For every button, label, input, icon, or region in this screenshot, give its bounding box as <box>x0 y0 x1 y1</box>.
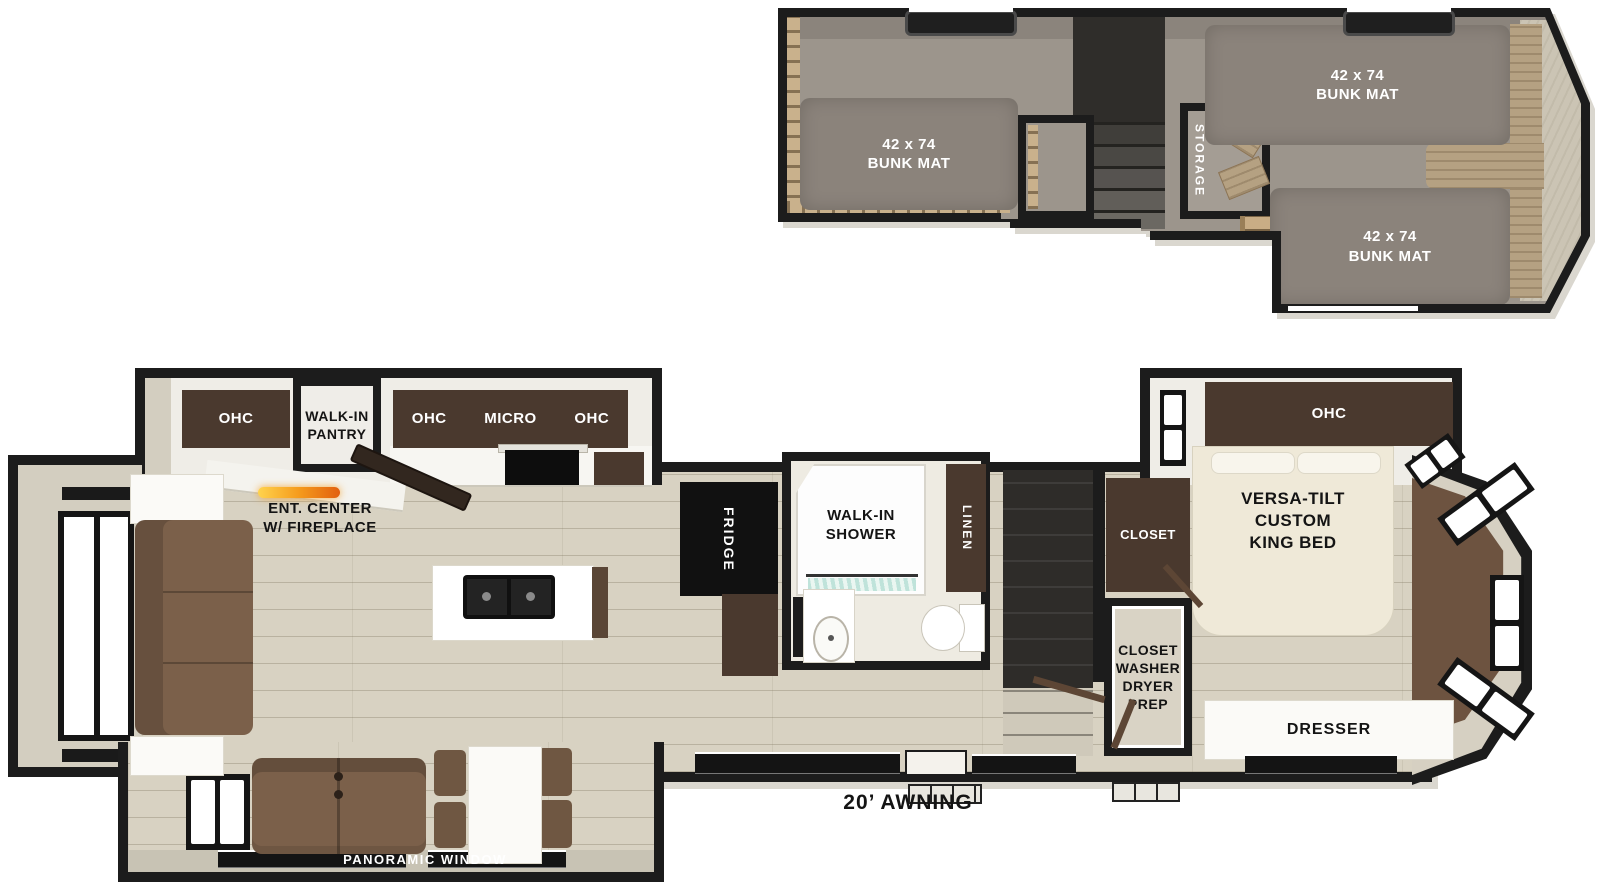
vanity <box>803 589 855 663</box>
bed-pillow <box>1211 452 1295 474</box>
shower-label-wrap: WALK-IN SHOWER <box>798 500 924 550</box>
ohc-right-label: OHC <box>574 409 609 429</box>
fridge-cabinet <box>722 594 778 676</box>
front-window <box>58 511 134 741</box>
ent-center-label: ENT. CENTER W/ FIREPLACE <box>263 499 377 538</box>
shower-label: WALK-IN SHOWER <box>826 506 897 545</box>
island-sink <box>463 575 555 619</box>
toilet <box>921 603 985 651</box>
shower-door-rail <box>806 574 918 577</box>
ent-center-label-wrap: ENT. CENTER W/ FIREPLACE <box>240 496 400 540</box>
washer-prep-label: CLOSET WASHER DRYER PREP <box>1116 641 1180 714</box>
slide-end-wall <box>145 378 171 485</box>
king-bed-label: VERSA-TILT CUSTOM KING BED <box>1241 488 1345 554</box>
rear-window-middle <box>1490 575 1524 671</box>
sofa-seam <box>163 662 253 664</box>
loft-rail-left <box>787 17 800 213</box>
loft-plan: STORAGE 42 x 74 BUNK MAT 42 x 74 BUNK MA… <box>778 8 1590 313</box>
dinette-chair <box>538 748 572 796</box>
kitchen-lower-cabinet <box>594 452 644 485</box>
end-table-bottom <box>130 736 224 776</box>
cupholder-icon <box>334 790 343 799</box>
micro-label: MICRO <box>484 409 537 429</box>
drain-icon <box>828 635 834 641</box>
linen-cabinet: LINEN <box>946 464 986 592</box>
bunk-mat-top-right: 42 x 74 BUNK MAT <box>1205 25 1510 145</box>
window-strip <box>695 752 900 774</box>
kitchen-cabinet-run: OHC MICRO OHC <box>393 390 628 448</box>
closet-label: CLOSET <box>1120 527 1176 544</box>
linen-label: LINEN <box>958 505 974 551</box>
dinette-chair <box>538 800 572 848</box>
skylight-icon <box>905 10 1017 36</box>
dinette-chair <box>434 802 466 848</box>
bunk-mat-left: 42 x 74 BUNK MAT <box>800 98 1018 210</box>
bathroom: WALK-IN SHOWER LINEN <box>782 452 990 670</box>
bed-pillow <box>1297 452 1381 474</box>
awning-label: 20’ AWNING <box>843 789 972 816</box>
panoramic-window-label: PANORAMIC WINDOW <box>343 852 507 869</box>
wood-divider-horizontal <box>1426 143 1544 189</box>
window-strip <box>1245 754 1397 774</box>
walk-in-shower: WALK-IN SHOWER <box>796 464 926 596</box>
dinette-chair <box>434 750 466 796</box>
fridge-label: FRIDGE <box>720 507 738 572</box>
bedroom-ohc-label: OHC <box>1312 404 1347 424</box>
awning-label-wrap: 20’ AWNING <box>808 788 1008 818</box>
landing-wood-edge <box>1028 125 1038 209</box>
toilet-bowl <box>921 605 965 651</box>
main-stairs <box>1003 470 1093 690</box>
faucet-icon <box>482 592 491 601</box>
bunk-mat-bottom-right-label: 42 x 74 BUNK MAT <box>1349 227 1432 266</box>
window-mullion <box>94 517 100 735</box>
ohc-mid-label: OHC <box>412 409 447 429</box>
island-end-panel <box>592 567 608 638</box>
ohc-cabinet-bedroom: OHC <box>1205 382 1453 446</box>
bunk-mat-bottom-right: 42 x 74 BUNK MAT <box>1270 188 1510 305</box>
ohc-left-label: OHC <box>219 409 254 429</box>
ohc-cabinet-left: OHC <box>182 390 290 448</box>
storage-shelf <box>1218 156 1270 200</box>
theater-seats <box>252 758 426 854</box>
panoramic-window-label-wrap: PANORAMIC WINDOW <box>310 852 540 868</box>
dresser-label: DRESSER <box>1287 720 1371 741</box>
kitchen-island <box>432 565 594 641</box>
loft-landing-room <box>1018 115 1094 219</box>
pantry-label: WALK-IN PANTRY <box>305 407 368 443</box>
bunk-mat-left-label: 42 x 74 BUNK MAT <box>868 135 951 174</box>
roof-trim <box>1347 8 1451 12</box>
faucet-icon <box>526 592 535 601</box>
cooktop <box>505 450 579 485</box>
bedroom-entry-steps <box>1112 782 1180 802</box>
sofa <box>135 520 253 735</box>
floorplan-canvas: STORAGE 42 x 74 BUNK MAT 42 x 74 BUNK MA… <box>0 0 1600 893</box>
slide-side-window <box>186 774 250 850</box>
sofa-seam <box>163 591 253 593</box>
bedroom-slide-window <box>1160 390 1186 466</box>
stairs-landing <box>1003 688 1093 756</box>
bunk-mat-top-right-label: 42 x 74 BUNK MAT <box>1316 66 1399 105</box>
dinette-table <box>468 746 542 864</box>
skylight-icon <box>1343 10 1455 36</box>
roof-trim <box>1288 306 1418 311</box>
loft-interior: STORAGE 42 x 74 BUNK MAT 42 x 74 BUNK MA… <box>778 8 1590 313</box>
dresser: DRESSER <box>1204 700 1454 760</box>
window-strip <box>972 754 1076 774</box>
fridge: FRIDGE <box>680 482 778 596</box>
end-table-top <box>130 474 224 524</box>
cupholder-icon <box>334 772 343 781</box>
vanity-mirror <box>793 597 803 657</box>
vanity-sink <box>813 616 849 662</box>
bed-label-wrap: VERSA-TILT CUSTOM KING BED <box>1193 475 1393 567</box>
king-bed: VERSA-TILT CUSTOM KING BED <box>1192 446 1394 636</box>
entry-door <box>905 750 967 776</box>
front-cap <box>8 455 142 777</box>
roof-trim <box>909 8 1013 12</box>
